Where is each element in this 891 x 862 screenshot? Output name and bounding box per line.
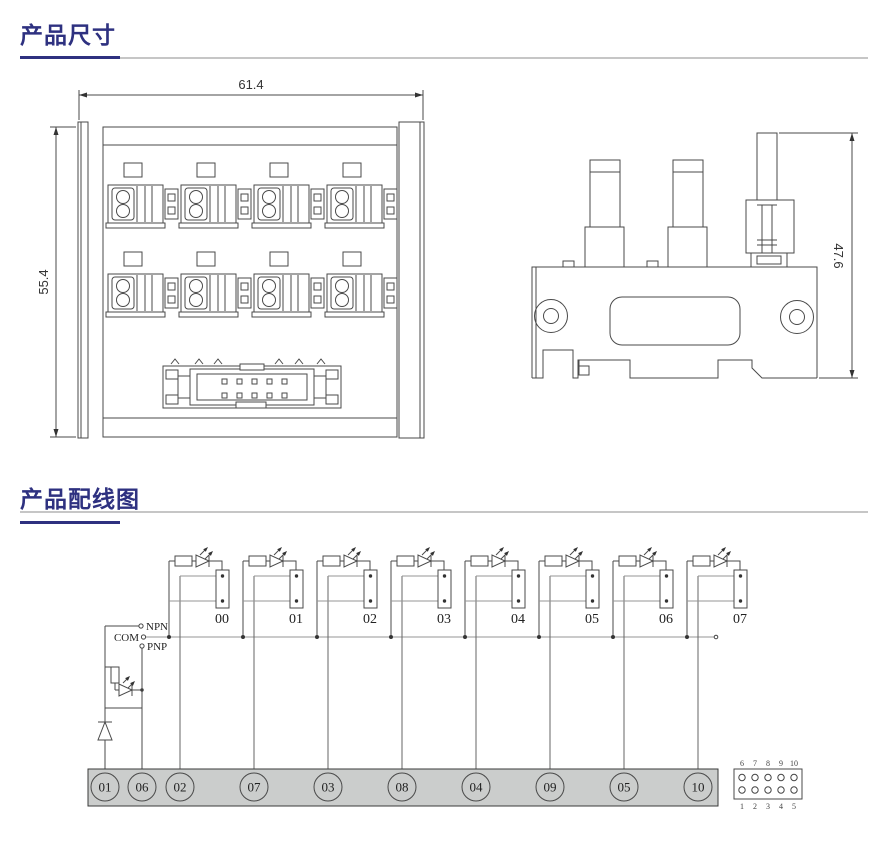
terminal-label: 09	[544, 780, 557, 795]
channel-label: 01	[289, 612, 303, 627]
pin-label: 9	[779, 759, 783, 768]
channel-unit-03	[389, 547, 451, 773]
channel-unit-02	[315, 547, 377, 773]
channel-label: 05	[585, 612, 599, 627]
terminal-label: 10	[692, 780, 705, 795]
pin-label: 2	[753, 802, 757, 811]
pnp-label: PNP	[147, 641, 167, 653]
front-view-drawing	[78, 122, 424, 438]
front-width-value: 61.4	[238, 77, 263, 92]
terminal-label: 05	[618, 780, 631, 795]
pin-label: 4	[779, 802, 783, 811]
terminal-label: 01	[99, 780, 112, 795]
front-height-value: 55.4	[36, 269, 51, 294]
pin-label: 6	[740, 759, 744, 768]
channel-unit-04	[463, 547, 525, 773]
connector-pin-map: 6 7 8 9 10 1 2 3 4 5	[734, 759, 802, 811]
terminal-label: 02	[174, 780, 187, 795]
pin-label: 1	[740, 802, 744, 811]
pin-label: 3	[766, 802, 770, 811]
pin-label: 10	[790, 759, 798, 768]
side-view-drawing	[532, 133, 817, 378]
product-datasheet-page: 产品尺寸 产品配线图	[0, 0, 891, 862]
terminal-label: 06	[136, 780, 150, 795]
pin-label: 7	[753, 759, 757, 768]
side-height-value: 47.6	[831, 243, 846, 268]
pin-label: 5	[792, 802, 796, 811]
channel-label: 02	[363, 612, 377, 627]
idc-connector	[163, 359, 341, 408]
channel-label: 06	[659, 612, 673, 627]
terminal-label: 04	[470, 780, 484, 795]
terminal-strip: 01 06 02 07 03 08 04 09 05 10	[88, 769, 718, 806]
dimension-front-width: 61.4	[79, 77, 423, 120]
com-label: COM	[114, 632, 139, 644]
channel-unit-06	[611, 547, 673, 773]
terminal-label: 03	[322, 780, 335, 795]
channel-unit-05	[537, 547, 599, 773]
terminal-label: 08	[396, 780, 409, 795]
technical-drawing-canvas: 61.4 55.4	[0, 0, 891, 862]
com-bus	[146, 635, 718, 639]
terminal-label: 07	[248, 780, 262, 795]
channel-label: 03	[437, 612, 451, 627]
channel-unit-01	[241, 547, 303, 773]
dimension-front-height: 55.4	[36, 127, 76, 437]
channel-label: 00	[215, 612, 229, 627]
channel-label: 07	[733, 612, 747, 627]
wiring-diagram: 00 01 02 03 04 05 06 07 NPN COM PNP	[88, 547, 802, 811]
resistor	[111, 667, 119, 683]
protection-diode	[98, 722, 112, 740]
pin-label: 8	[766, 759, 770, 768]
npn-label: NPN	[146, 621, 168, 633]
common-input-circuit: NPN COM PNP	[98, 621, 168, 773]
channel-unit-07	[685, 547, 747, 773]
channel-unit-00	[167, 547, 229, 773]
dimension-side-height: 47.6	[779, 133, 858, 378]
channel-label: 04	[511, 612, 525, 627]
